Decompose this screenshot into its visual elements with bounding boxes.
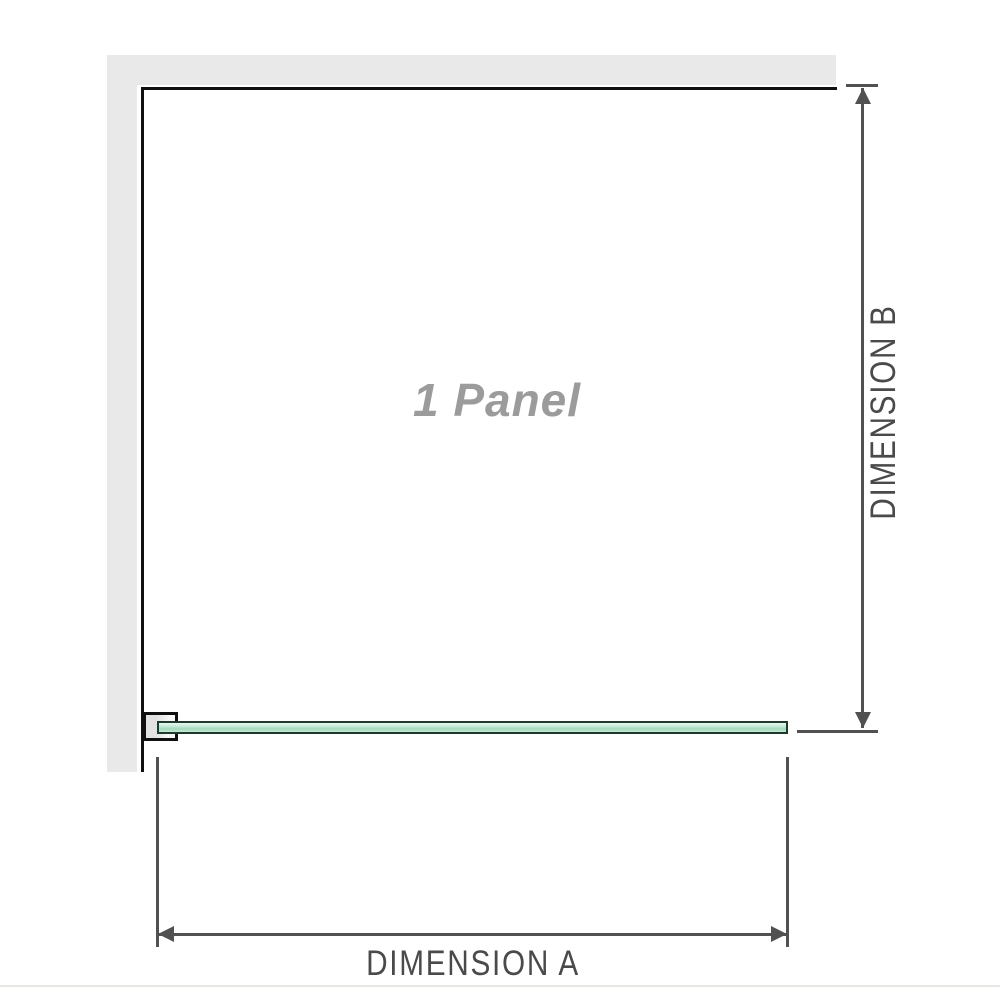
arrow-down-icon xyxy=(855,712,871,728)
dimension-b-label: DIMENSION B xyxy=(864,304,904,519)
shower-panel-diagram: DIMENSION B DIMENSION A 1 Panel xyxy=(0,0,1000,1000)
dimension-a-line xyxy=(158,933,787,936)
arrow-right-icon xyxy=(771,926,787,942)
wall-segment-top xyxy=(107,55,836,85)
wall-segment-left xyxy=(107,55,137,772)
arrow-left-icon xyxy=(158,926,174,942)
arrow-up-icon xyxy=(855,88,871,104)
wall-edge-line-top xyxy=(141,87,837,90)
wall-edge-line-left xyxy=(141,87,144,772)
dimension-a-label: DIMENSION A xyxy=(366,944,580,984)
image-bottom-edge-rule xyxy=(0,985,1000,987)
glass-panel-strip xyxy=(157,721,788,734)
dimension-b-bottom-tick xyxy=(797,730,878,733)
dimension-a-right-extension-line xyxy=(786,757,789,947)
dimension-b-top-tick xyxy=(846,84,878,87)
dimension-a-left-extension-line xyxy=(156,757,159,947)
panel-count-label: 1 Panel xyxy=(413,373,581,427)
